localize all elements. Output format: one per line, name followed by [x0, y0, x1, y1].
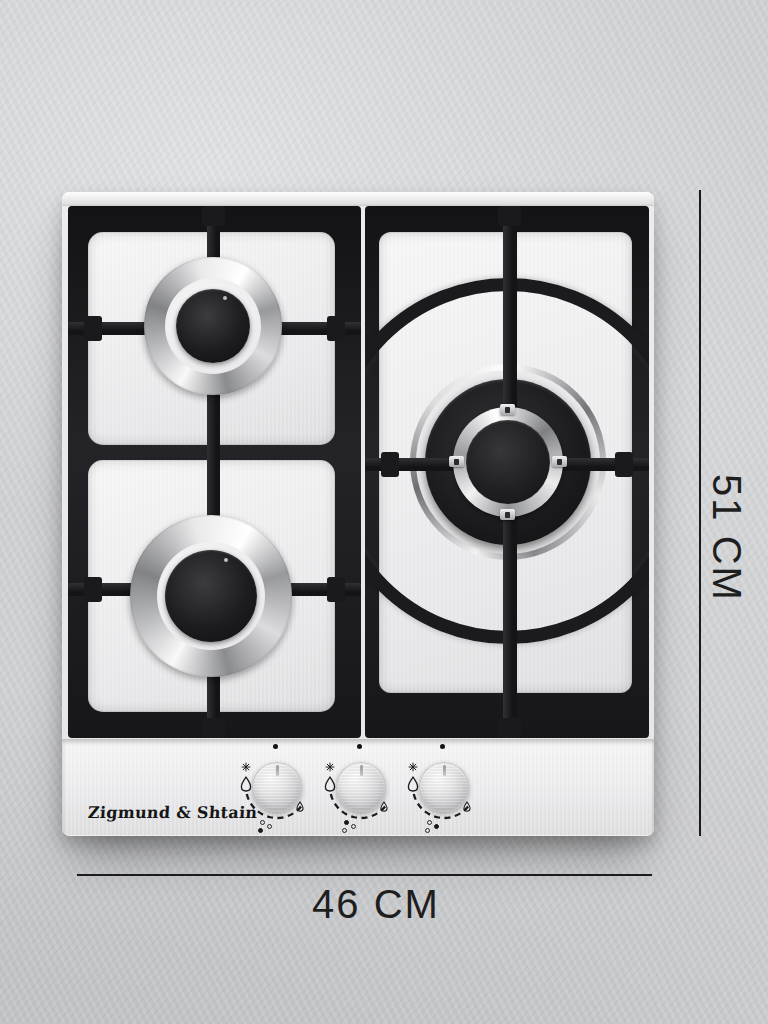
burner-map-indicator: [341, 820, 357, 834]
height-dimension-line: [699, 190, 701, 836]
map-dot-right: [434, 824, 439, 829]
left-cooktop-panel: [68, 206, 361, 738]
knob-dial-front-left: [252, 762, 302, 812]
wok-bracket-left: [449, 456, 464, 467]
map-dot-rear-left: [344, 820, 349, 825]
ignition-dot: [440, 744, 445, 749]
knob-unit-right: [399, 742, 489, 836]
wok-inner-chrome-ring: [453, 407, 563, 517]
product-photo-stage: Zigmund & Shtain: [0, 0, 768, 1024]
burner-map-indicator: [424, 820, 440, 834]
knob-dial-right: [419, 762, 469, 812]
map-dot-rear-left: [427, 820, 432, 825]
wok-bracket-top: [500, 404, 515, 415]
map-dot-front-left: [342, 828, 347, 833]
wok-bracket-right: [552, 456, 567, 467]
knob-dial-rear-left: [336, 762, 386, 812]
map-dot-right: [351, 824, 356, 829]
burner-map-indicator: [257, 820, 273, 834]
front-left-burner: [130, 515, 292, 677]
hob-top-edge: [62, 192, 654, 206]
width-dimension-line: [77, 874, 652, 876]
ignition-dot: [273, 744, 278, 749]
flame-small-icon: [380, 801, 388, 812]
knob-unit-rear-left: [316, 742, 406, 836]
map-dot-front-left: [425, 828, 430, 833]
front-left-burner-ring: [157, 542, 265, 650]
height-dimension-label: 51 CM: [705, 458, 749, 618]
width-dimension-label: 46 CM: [276, 882, 476, 927]
knob-unit-front-left: [232, 742, 322, 836]
right-cooktop-panel: [365, 206, 649, 738]
rear-left-burner: [144, 257, 282, 395]
map-dot-right: [267, 824, 272, 829]
rear-left-burner-ring: [165, 278, 261, 374]
front-left-burner-cap: [165, 550, 257, 642]
wok-burner-cap: [466, 420, 550, 504]
ignition-dot: [357, 744, 362, 749]
flame-small-icon: [463, 801, 471, 812]
map-dot-front-left: [258, 828, 263, 833]
rear-left-burner-cap: [176, 289, 250, 363]
map-dot-rear-left: [260, 820, 265, 825]
wok-bracket-bottom: [500, 509, 515, 520]
flame-small-icon: [296, 801, 304, 812]
